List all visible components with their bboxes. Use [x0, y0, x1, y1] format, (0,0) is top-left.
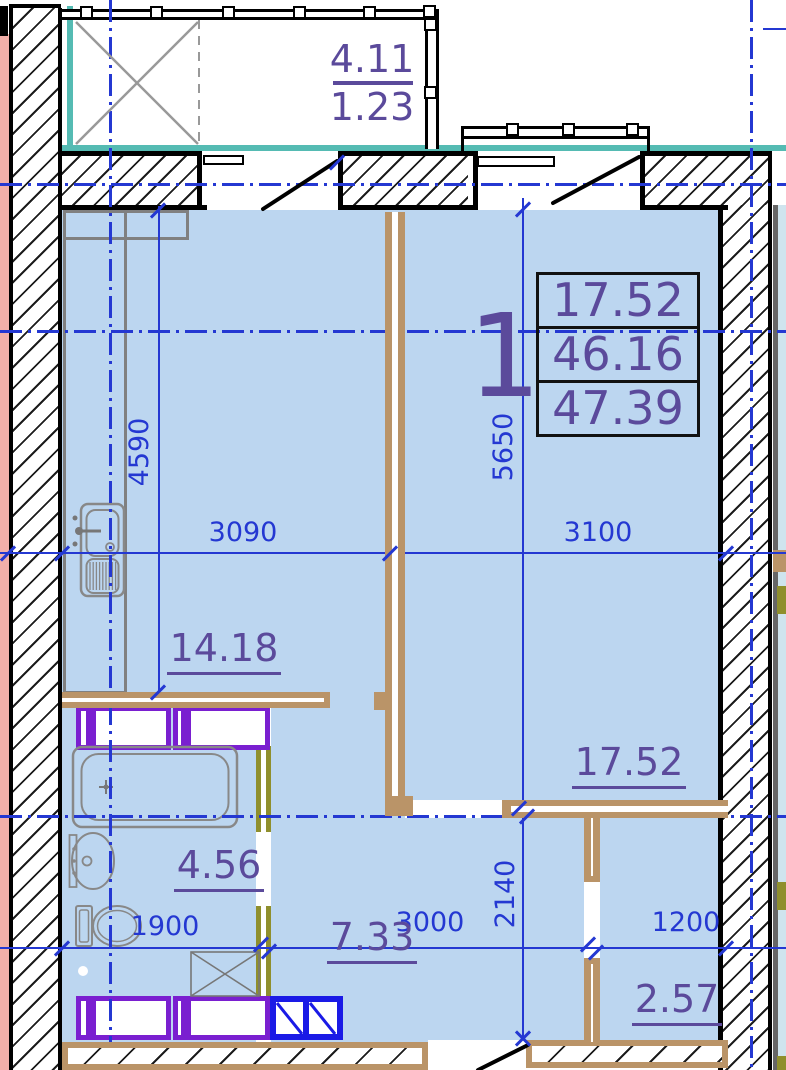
area-table-total: 46.16 [539, 329, 697, 383]
area-table-living: 17.52 [539, 275, 697, 329]
area-value: 7.33 [327, 915, 418, 964]
entrance-door-opening [428, 1040, 526, 1070]
window-sill-2 [477, 156, 555, 167]
area-kitchen-living: 14.18 [164, 628, 284, 668]
wall-cap [584, 958, 600, 964]
wall-bedroom-hall [502, 800, 728, 818]
wall-left-inner-edge [58, 8, 62, 1070]
railing-post [423, 5, 436, 18]
railing-post [562, 123, 575, 136]
area-table: 17.52 46.16 47.39 [536, 272, 700, 437]
wall-left-outer-edge [9, 4, 13, 1070]
wall-kitchen-bath [62, 692, 330, 708]
wall-edge [338, 205, 478, 210]
cabinet-purple [186, 996, 270, 1040]
partition-foot [385, 796, 413, 816]
wall-edge [62, 205, 207, 210]
neighbor-apartment-right [778, 205, 786, 1070]
kitchen-counter-side [63, 210, 127, 694]
railing-post [506, 123, 519, 136]
axis-line-h1 [0, 183, 786, 186]
kitchen-counter-top [63, 210, 189, 240]
area-storage: 2.57 [617, 979, 737, 1019]
cabinet-purple [173, 706, 186, 750]
area-hall: 7.33 [312, 917, 432, 957]
wall-top-segment-c [645, 156, 772, 205]
railing-post [150, 6, 163, 19]
railing-post [293, 6, 306, 19]
dim-1900: 1900 [115, 912, 215, 942]
wall-top-pier [343, 154, 468, 207]
dim-line-neighbor [763, 28, 786, 30]
area-value: 14.18 [167, 626, 282, 675]
balcony-area-lower: 1.23 [322, 86, 422, 128]
wall-edge [197, 151, 202, 210]
area-value: 4.56 [174, 843, 265, 892]
axis-line-v1 [109, 0, 112, 1070]
wall-edge [62, 151, 202, 156]
cabinet-purple [173, 996, 186, 1040]
axis-line-v2 [750, 0, 753, 1070]
balcony-glazing-left [67, 6, 73, 151]
neighbor-right-wall-line [773, 205, 778, 1070]
cabinet-purple [76, 706, 91, 750]
floor-plan-canvas: 1 17.52 46.16 47.39 4.11 1.23 3090 3100 … [0, 0, 786, 1070]
neighbor-door-jamb-1 [777, 586, 786, 614]
area-value: 2.57 [632, 977, 723, 1026]
railing-post [80, 6, 93, 19]
dim-5650: 5650 [489, 392, 519, 502]
wall-edge [640, 205, 728, 210]
cabinet-purple [76, 996, 91, 1040]
area-bedroom: 17.52 [569, 742, 689, 782]
dim-4590: 4590 [125, 397, 155, 507]
window-sill-1 [203, 155, 244, 165]
wall-edge [338, 151, 478, 156]
balcony-cross [76, 20, 199, 146]
railing-post [424, 18, 437, 31]
partition-living-bedroom [385, 212, 405, 802]
cabinet-purple [186, 706, 270, 750]
railing-post [363, 6, 376, 19]
wall-cap [324, 692, 330, 708]
wall-left-top-edge [9, 4, 61, 8]
balcony2-railing [462, 126, 650, 139]
wall-storage-stub-bottom [584, 958, 600, 1042]
cabinet-purple [91, 996, 171, 1040]
wall-storage-stub-top [584, 818, 600, 882]
wall-left-exterior [13, 8, 58, 1070]
wall-cap [584, 876, 600, 882]
railing-post [626, 123, 639, 136]
bath-door-jamb-top [256, 746, 271, 832]
wall-right-inner-edge [718, 205, 723, 1070]
dim-3090: 3090 [193, 518, 293, 548]
balcony-area-upper: 4.11 [322, 38, 422, 80]
left-edge-wall-cap [0, 6, 8, 36]
partition-notch [374, 692, 386, 710]
neighbor-door-jamb-3 [777, 1056, 786, 1070]
railing-post [424, 86, 437, 99]
wall-right-exterior [723, 205, 768, 1070]
cabinet-blue-divider [303, 996, 309, 1040]
dim-3100: 3100 [548, 518, 648, 548]
neighbor-door-jamb-2 [777, 882, 786, 910]
area-bathroom: 4.56 [159, 845, 279, 885]
dim-line-4590 [158, 206, 160, 700]
dim-1200: 1200 [636, 908, 736, 938]
wall-bottom-left [62, 1042, 428, 1070]
area-table-total-balcony: 47.39 [539, 383, 697, 434]
dim-2140: 2140 [491, 844, 521, 944]
wall-right-outer-edge [768, 151, 772, 1070]
wall-cap [502, 800, 511, 818]
wall-top-segment-a [62, 154, 197, 207]
area-value: 17.52 [572, 740, 687, 789]
railing-post [222, 6, 235, 19]
wall-edge [640, 151, 645, 210]
wall-bottom-storage [526, 1040, 728, 1068]
cabinet-purple [91, 706, 171, 750]
